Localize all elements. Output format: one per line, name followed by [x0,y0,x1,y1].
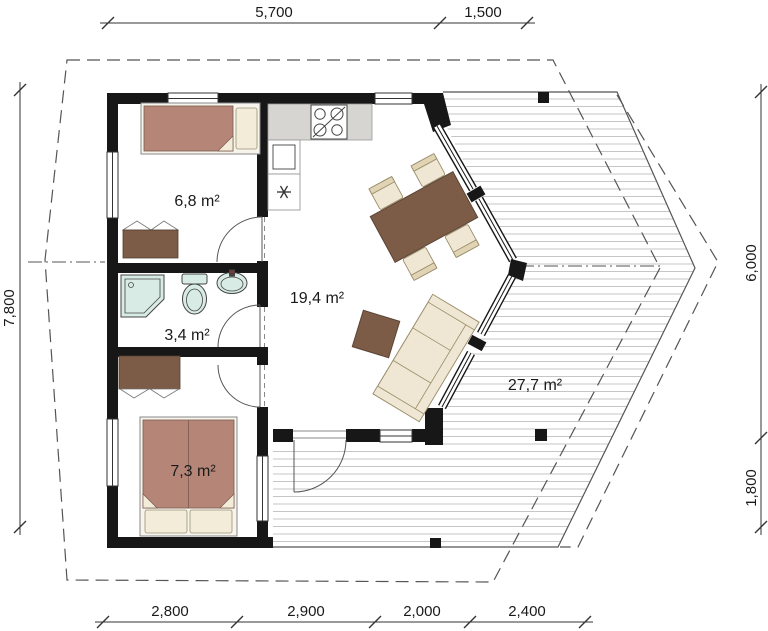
pillow [190,510,232,533]
dim-bottom-4: 2,400 [508,603,546,620]
bathroom-fixtures [121,270,247,317]
coffee-table [352,310,399,357]
dim-left-1: 7,800 [1,289,18,327]
fridge-unit [268,174,300,210]
door-bathroom [218,305,260,347]
window-living-south [380,430,412,442]
wardrobe-bedroom-large [119,356,180,398]
area-label-bedroom-small: 6,8 m² [174,193,220,210]
bed-single [141,103,260,154]
cooktop-icon [311,105,347,139]
kitchen [268,104,372,210]
dim-bottom-2: 2,900 [287,603,325,620]
area-label-terrace: 27,7 m² [508,377,563,394]
wardrobe-bedroom-small [123,221,178,258]
door-terrace [293,431,346,492]
dim-right-1: 6,000 [743,244,760,282]
toilet [182,274,207,314]
door-bedroom-small [217,217,262,262]
window-living-north [375,93,412,104]
window-bedroom-small-west [107,152,118,218]
window-bedroom-large-west [107,419,118,486]
dining-set [358,150,489,284]
overhang-outline [560,95,718,547]
dim-top-1: 5,700 [255,4,293,21]
window-bedroom-large-east [257,456,268,521]
terrace-decking [260,99,768,542]
dim-right-2: 1,800 [743,469,760,507]
shower [121,275,164,317]
floor-plan-drawing: 6,8 m² 3,4 m² 7,3 m² 19,4 m² 27,7 m² 5,7… [0,0,768,631]
area-label-living-room: 19,4 m² [290,290,345,307]
pillow [236,108,257,149]
area-label-bedroom-large: 7,3 m² [170,463,216,480]
window-bedroom-small-north [168,93,218,104]
dim-bottom-3: 2,000 [403,603,441,620]
dim-top-2: 1,500 [464,4,502,21]
dim-bottom-1: 2,800 [151,603,189,620]
door-bedroom-large [218,365,260,407]
pillow [145,510,187,533]
area-label-bathroom: 3,4 m² [164,327,210,344]
floor-plan-canvas: 6,8 m² 3,4 m² 7,3 m² 19,4 m² 27,7 m² 5,7… [0,0,768,631]
washbasin [217,270,247,294]
kitchen-sink [268,140,300,174]
